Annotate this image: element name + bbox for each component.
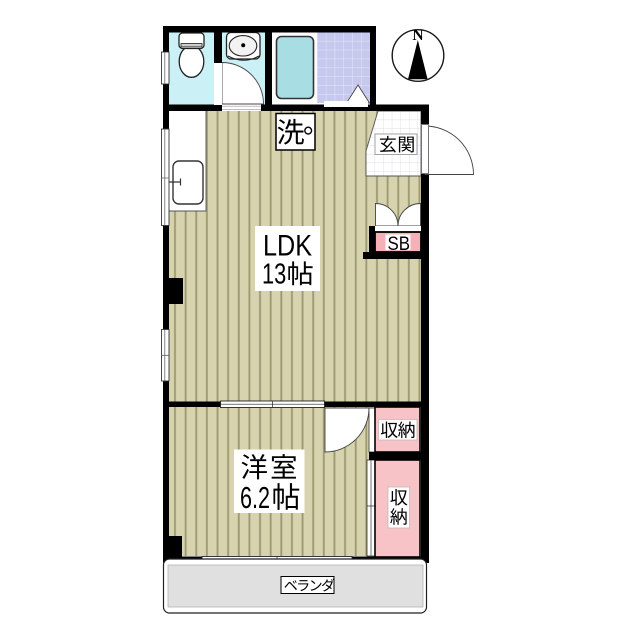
svg-text:6.2: 6.2 <box>240 480 270 515</box>
svg-text:13: 13 <box>262 259 286 291</box>
svg-text:SB: SB <box>388 234 411 255</box>
